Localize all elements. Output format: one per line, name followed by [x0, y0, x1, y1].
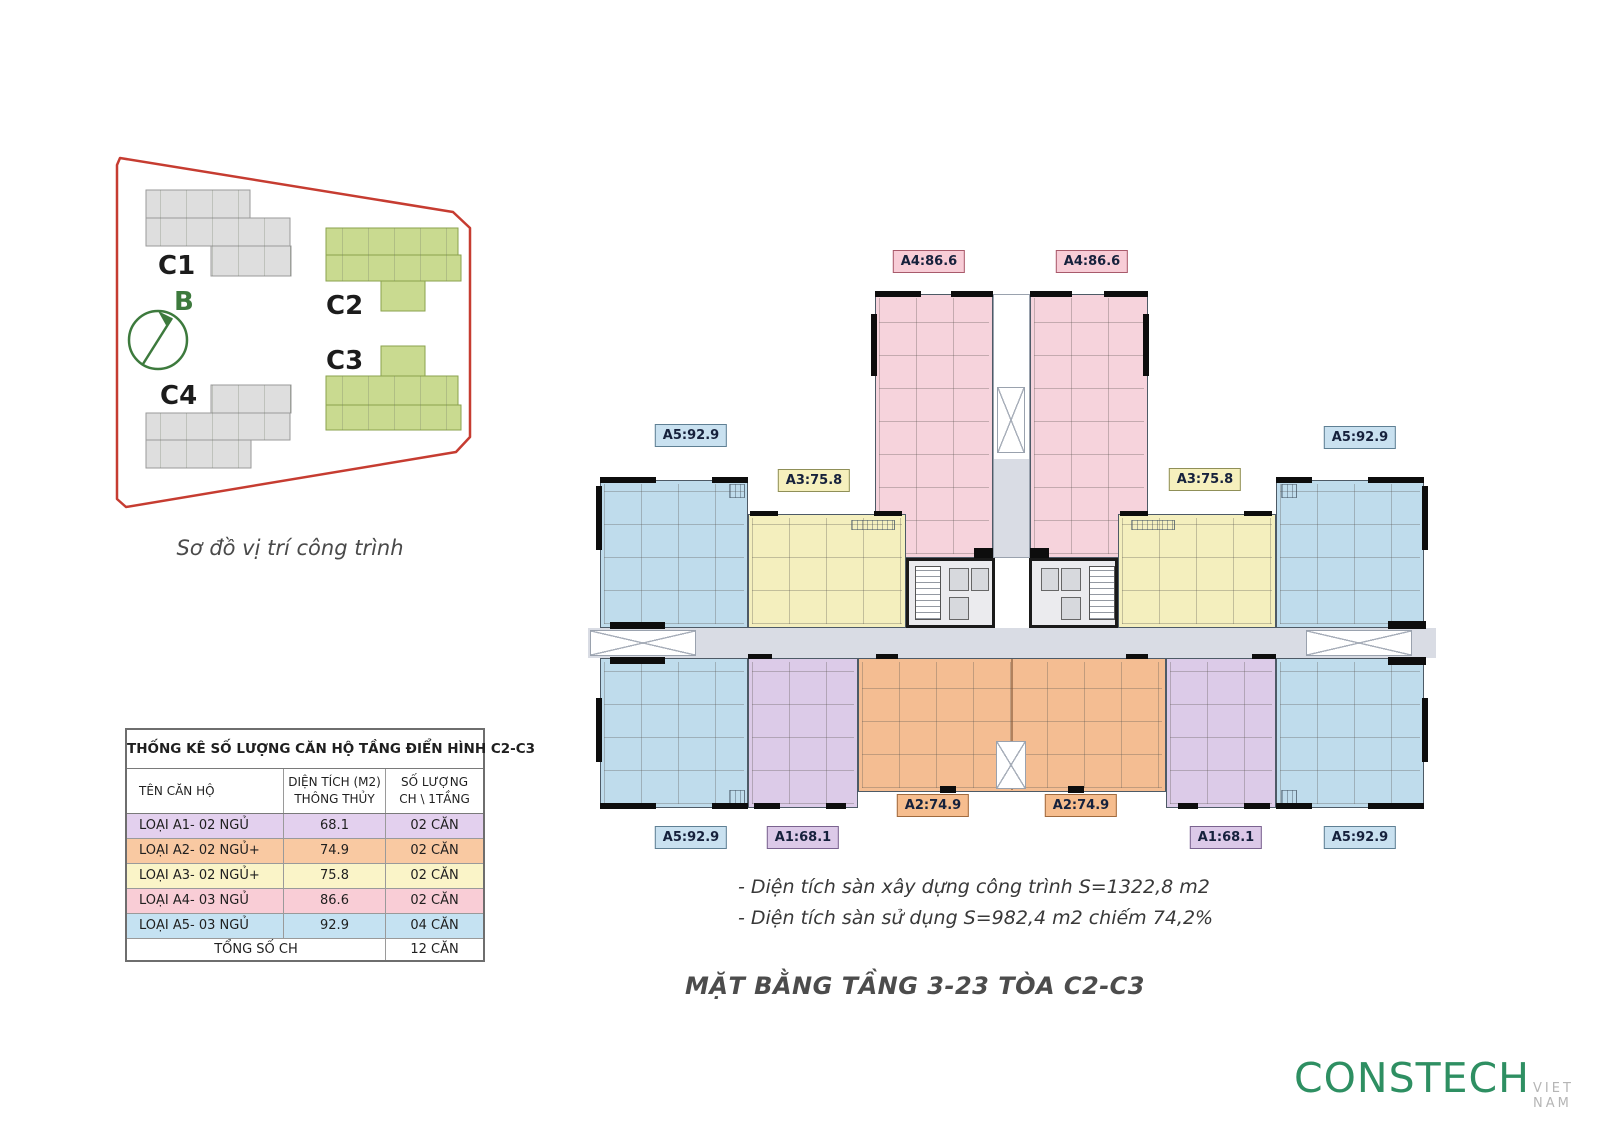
table-row: LOẠI A2- 02 NGỦ+ 74.9 02 CĂN — [127, 839, 483, 864]
cell-area: 74.9 — [283, 839, 385, 863]
cell-area: 92.9 — [283, 914, 385, 938]
wall-segment — [1388, 657, 1426, 665]
unit-label-a2-left: A2:74.9 — [897, 794, 969, 817]
cell-name: LOẠI A4- 03 NGỦ — [127, 889, 283, 913]
balcony-hatch — [1281, 484, 1297, 498]
wall-segment — [1422, 486, 1428, 550]
unit-label-a3-right: A3:75.8 — [1169, 468, 1241, 491]
unit-label-a5-bottom-right: A5:92.9 — [1324, 826, 1396, 849]
logo-brand-text: CONSTECH — [1294, 1058, 1530, 1099]
unit-label-a5-bottom-left: A5:92.9 — [655, 826, 727, 849]
balcony-hatch — [729, 484, 745, 498]
unit-a3-left — [748, 514, 906, 628]
unit-label-a2-right: A2:74.9 — [1045, 794, 1117, 817]
unit-label-a1-right: A1:68.1 — [1190, 826, 1262, 849]
corridor-end-right — [1306, 630, 1412, 656]
wall-segment — [974, 548, 993, 558]
wall-segment — [876, 654, 898, 659]
header-name: TÊN CĂN HỘ — [127, 769, 283, 813]
table-title: THỐNG KÊ SỐ LƯỢNG CĂN HỘ TẦNG ĐIỂN HÌNH … — [127, 730, 483, 769]
table-row: LOẠI A5- 03 NGỦ 92.9 04 CĂN — [127, 914, 483, 939]
unit-a5-upper-right — [1276, 480, 1424, 628]
logo-suffix-text: VIET NAM — [1533, 1081, 1600, 1111]
building-label-c1: C1 — [158, 253, 195, 279]
wall-segment — [750, 511, 778, 516]
wall-segment — [1252, 654, 1276, 659]
wall-segment — [875, 291, 921, 297]
wall-segment — [754, 803, 780, 809]
cell-name: LOẠI A3- 02 NGỦ+ — [127, 864, 283, 888]
elevator — [1041, 568, 1059, 591]
stair-core-right — [1029, 558, 1118, 628]
table-footer-row: TỔNG SỐ CH 12 CĂN — [127, 939, 483, 960]
wall-segment — [1030, 291, 1072, 297]
apartment-stats-table: THỐNG KÊ SỐ LƯỢNG CĂN HỘ TẦNG ĐIỂN HÌNH … — [125, 728, 485, 962]
center-shaft — [996, 741, 1026, 789]
site-map — [108, 140, 488, 580]
plan-title: MẶT BẰNG TẦNG 3-23 TÒA C2-C3 — [640, 972, 1190, 1000]
wall-segment — [1030, 548, 1049, 558]
table-header-row: TÊN CĂN HỘ DIỆN TÍCH (M2)THÔNG THỦY SỐ L… — [127, 769, 483, 814]
stairwell — [1089, 566, 1115, 620]
wall-segment — [712, 477, 748, 483]
wall-segment — [596, 486, 602, 550]
cell-count: 02 CĂN — [385, 839, 483, 863]
cell-name: LOẠI A1- 02 NGỦ — [127, 814, 283, 838]
wall-segment — [596, 698, 602, 762]
table-row: LOẠI A4- 03 NGỦ 86.6 02 CĂN — [127, 889, 483, 914]
corridor-end-left — [590, 630, 696, 656]
wall-segment — [610, 657, 665, 664]
wall-segment — [1368, 477, 1424, 483]
elevator-shaft-top — [993, 294, 1030, 558]
footer-label: TỔNG SỐ CH — [127, 939, 385, 960]
wall-segment — [1388, 621, 1426, 629]
shaft-gray — [994, 459, 1029, 557]
cell-area: 68.1 — [283, 814, 385, 838]
unit-label-a1-left: A1:68.1 — [767, 826, 839, 849]
site-caption: Sơ đồ vị trí công trình — [115, 536, 465, 560]
building-label-c3: C3 — [326, 348, 363, 374]
cell-area: 75.8 — [283, 864, 385, 888]
wall-segment — [1244, 511, 1272, 516]
wall-segment — [871, 314, 877, 376]
elevator — [971, 568, 989, 591]
wall-segment — [1068, 786, 1084, 793]
cell-count: 02 CĂN — [385, 864, 483, 888]
wall-segment — [826, 803, 846, 809]
wall-segment — [600, 803, 656, 809]
wall-segment — [951, 291, 993, 297]
stairwell — [915, 566, 941, 620]
cell-area: 86.6 — [283, 889, 385, 913]
unit-a5-lower-left — [600, 658, 748, 808]
wall-segment — [610, 622, 665, 629]
wall-segment — [1276, 803, 1312, 809]
constech-logo: CONSTECH VIET NAM — [1294, 1058, 1600, 1111]
unit-a3-right — [1118, 514, 1276, 628]
balcony-hatch — [851, 520, 895, 530]
area-notes: - Diện tích sàn xây dựng công trình S=13… — [738, 872, 1213, 934]
building-label-c4: C4 — [160, 383, 197, 409]
wall-segment — [600, 477, 656, 483]
wall-segment — [1276, 477, 1312, 483]
table-row: LOẠI A3- 02 NGỦ+ 75.8 02 CĂN — [127, 864, 483, 889]
wall-segment — [712, 803, 748, 809]
unit-a5-lower-right — [1276, 658, 1424, 808]
balcony-hatch — [729, 790, 745, 804]
unit-label-a4-right: A4:86.6 — [1056, 250, 1128, 273]
note-line: - Diện tích sàn sử dụng S=982,4 m2 chiếm… — [738, 903, 1213, 934]
unit-a5-upper-left — [600, 480, 748, 628]
typical-floor-plan: A4:86.6 A4:86.6 A5:92.9 A5:92.9 A3:75.8 … — [572, 228, 1452, 878]
wall-segment — [1178, 803, 1198, 809]
stair-core-left — [906, 558, 995, 628]
cell-name: LOẠI A2- 02 NGỦ+ — [127, 839, 283, 863]
elevator — [1061, 597, 1081, 620]
unit-label-a4-left: A4:86.6 — [893, 250, 965, 273]
unit-a1-right — [1166, 658, 1276, 808]
footer-count: 12 CĂN — [385, 939, 483, 960]
cell-count: 02 CĂN — [385, 814, 483, 838]
poster-canvas: C1 B C2 C3 C4 Sơ đồ vị trí công trình TH… — [0, 0, 1600, 1130]
unit-label-a5-top-left: A5:92.9 — [655, 424, 727, 447]
balcony-hatch — [1281, 790, 1297, 804]
table-row: LOẠI A1- 02 NGỦ 68.1 02 CĂN — [127, 814, 483, 839]
note-line: - Diện tích sàn xây dựng công trình S=13… — [738, 872, 1213, 903]
units-a2-center — [858, 658, 1166, 792]
wall-segment — [1104, 291, 1148, 297]
unit-a1-left — [748, 658, 858, 808]
cell-count: 04 CĂN — [385, 914, 483, 938]
wall-segment — [1422, 698, 1428, 762]
elevator — [949, 568, 969, 591]
compass-icon — [129, 311, 187, 369]
elevator — [1061, 568, 1081, 591]
header-count: SỐ LƯỢNGCH \ 1TẦNG — [385, 769, 483, 813]
elevator — [949, 597, 969, 620]
header-area: DIỆN TÍCH (M2)THÔNG THỦY — [283, 769, 385, 813]
unit-label-a5-top-right: A5:92.9 — [1324, 426, 1396, 449]
wall-segment — [1143, 314, 1149, 376]
cell-name: LOẠI A5- 03 NGỦ — [127, 914, 283, 938]
wall-segment — [940, 786, 956, 793]
wall-segment — [874, 511, 902, 516]
wall-segment — [1244, 803, 1270, 809]
building-label-c2: C2 — [326, 293, 363, 319]
compass-north-label: B — [174, 289, 194, 315]
wall-segment — [748, 654, 772, 659]
wall-segment — [1120, 511, 1148, 516]
wall-segment — [1368, 803, 1424, 809]
cell-count: 02 CĂN — [385, 889, 483, 913]
unit-label-a3-left: A3:75.8 — [778, 469, 850, 492]
balcony-hatch — [1131, 520, 1175, 530]
wall-segment — [1126, 654, 1148, 659]
shaft-x-box — [997, 387, 1025, 453]
